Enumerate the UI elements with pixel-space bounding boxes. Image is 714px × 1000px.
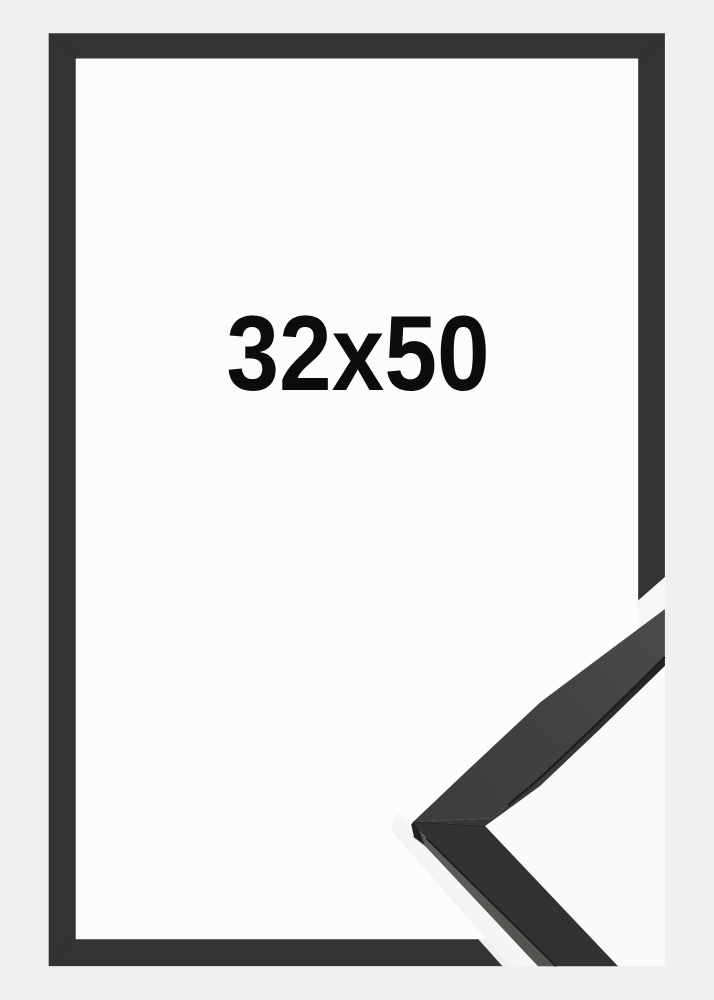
svg-text:32x50: 32x50 [226,295,489,414]
